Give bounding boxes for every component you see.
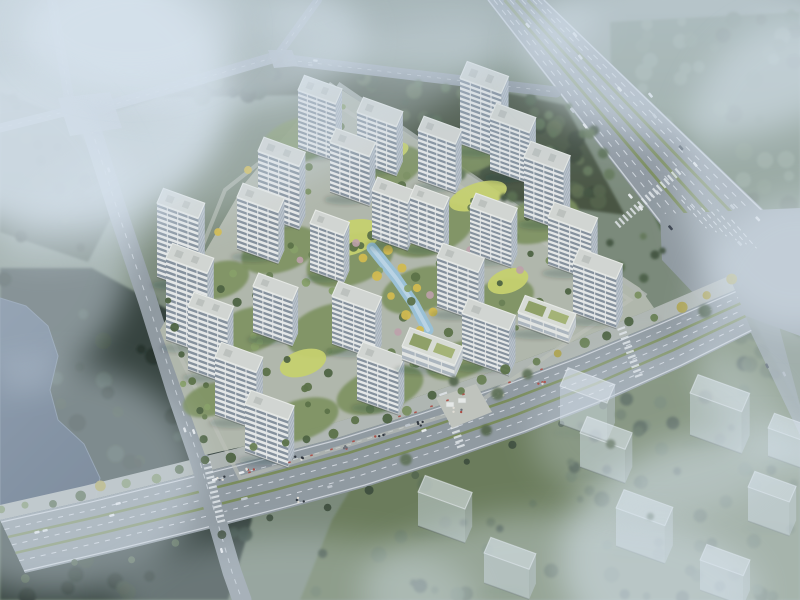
rendering-canvas <box>0 0 800 600</box>
fog-cloud <box>530 345 790 515</box>
aerial-rendering <box>0 0 800 600</box>
